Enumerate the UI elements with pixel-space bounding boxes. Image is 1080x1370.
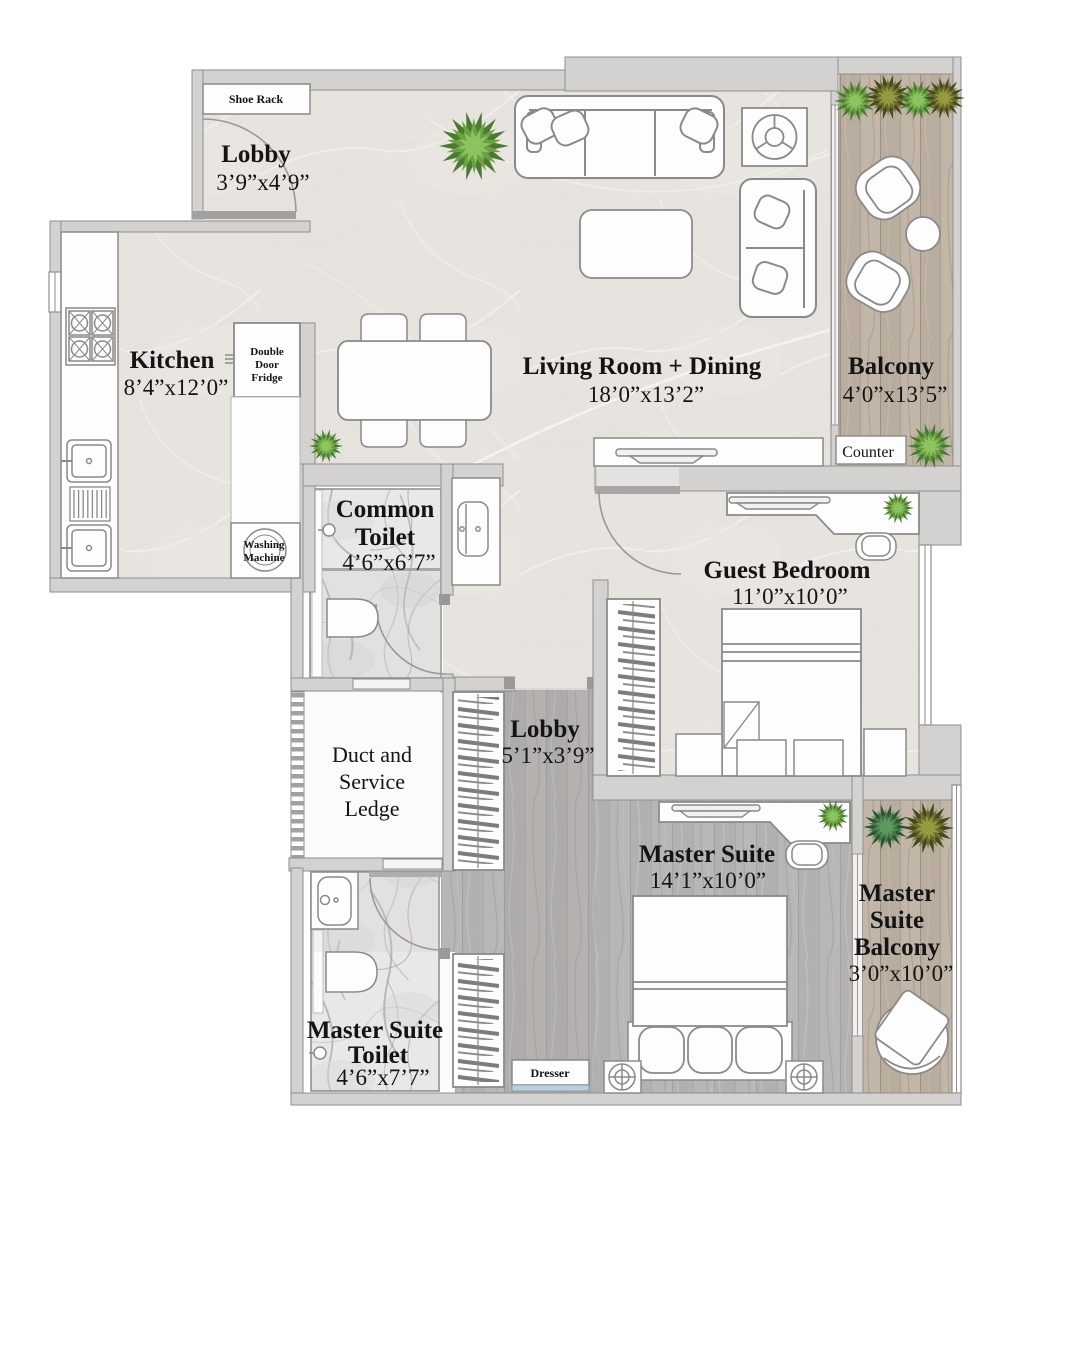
svg-text:Dresser: Dresser [530, 1066, 570, 1080]
svg-text:4’6”x6’7”: 4’6”x6’7” [342, 550, 435, 575]
svg-text:Master Suite: Master Suite [307, 1017, 443, 1044]
svg-text:4’6”x7’7”: 4’6”x7’7” [336, 1065, 429, 1090]
svg-text:Counter: Counter [842, 444, 894, 461]
svg-text:Lobby: Lobby [510, 716, 580, 743]
svg-text:Duct and: Duct and [332, 742, 412, 767]
svg-text:Guest Bedroom: Guest Bedroom [704, 557, 871, 584]
svg-text:Service: Service [339, 769, 405, 794]
svg-text:Ledge: Ledge [345, 796, 400, 821]
svg-text:Fridge: Fridge [251, 372, 282, 384]
svg-text:14’1”x10’0”: 14’1”x10’0” [650, 868, 766, 893]
svg-text:Shoe Rack: Shoe Rack [229, 92, 284, 106]
svg-text:3’9”x4’9”: 3’9”x4’9” [216, 170, 309, 195]
svg-text:Common: Common [336, 496, 435, 523]
svg-text:Kitchen: Kitchen [130, 347, 215, 374]
svg-text:Living Room + Dining: Living Room + Dining [523, 353, 762, 380]
svg-text:Washing: Washing [244, 539, 285, 551]
svg-text:Master: Master [859, 880, 935, 907]
svg-text:11’0”x10’0”: 11’0”x10’0” [732, 584, 847, 609]
svg-text:5’1”x3’9”: 5’1”x3’9” [501, 743, 594, 768]
svg-text:Balcony: Balcony [848, 353, 935, 380]
svg-text:8’4”x12’0”: 8’4”x12’0” [124, 375, 229, 400]
svg-text:Lobby: Lobby [221, 141, 291, 168]
svg-text:Double: Double [250, 346, 284, 358]
svg-text:Toilet: Toilet [355, 524, 416, 551]
svg-text:18’0”x13’2”: 18’0”x13’2” [588, 382, 704, 407]
svg-text:Machine: Machine [244, 552, 285, 564]
svg-text:Suite: Suite [870, 907, 924, 934]
svg-text:Master Suite: Master Suite [639, 841, 775, 868]
svg-text:4’0”x13’5”: 4’0”x13’5” [843, 382, 948, 407]
svg-text:Balcony: Balcony [854, 934, 941, 961]
svg-text:3’0”x10’0”: 3’0”x10’0” [849, 961, 954, 986]
svg-text:Door: Door [255, 359, 279, 371]
